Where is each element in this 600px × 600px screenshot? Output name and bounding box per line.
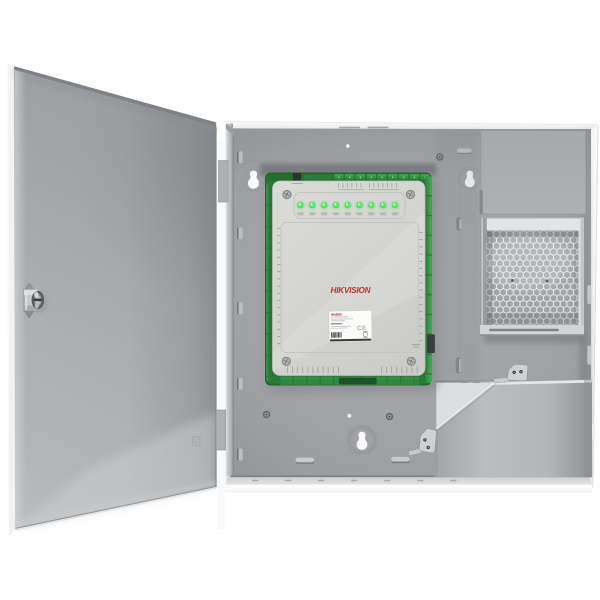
svg-text:CE: CE [357,325,367,332]
svg-text:HIKVISION: HIKVISION [331,286,372,295]
svg-text:HIKVISION: HIKVISION [331,312,343,316]
